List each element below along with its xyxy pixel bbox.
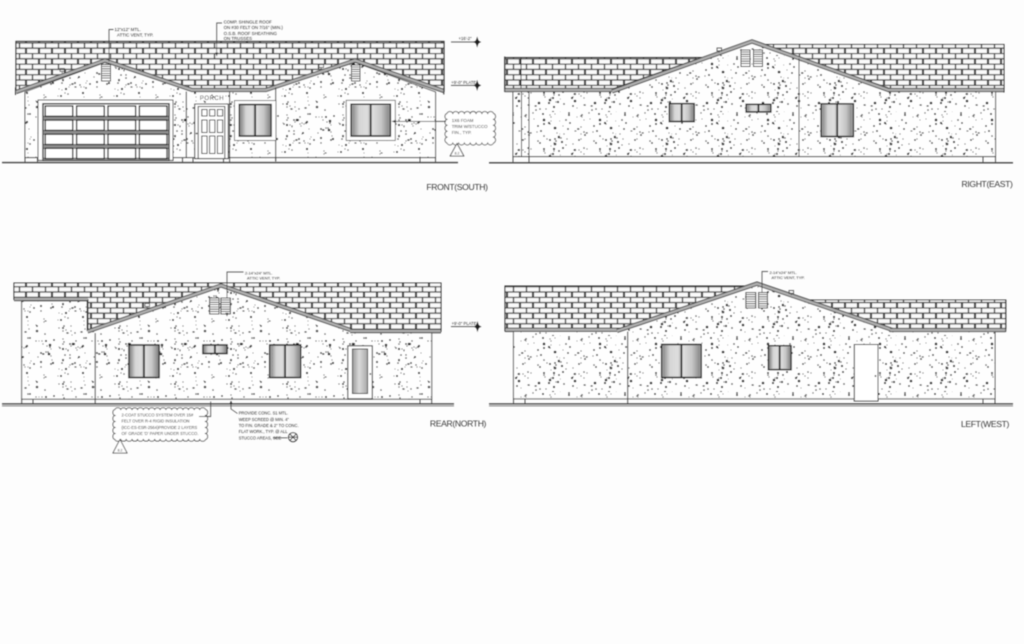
svg-text:FLAT WORK., TYP. @ ALL: FLAT WORK., TYP. @ ALL [239,429,289,434]
svg-text:WEEP SCREED @ MIN. 4": WEEP SCREED @ MIN. 4" [239,417,290,422]
svg-text:ON #30 FELT ON 7/16" (MIN.): ON #30 FELT ON 7/16" (MIN.) [224,25,284,30]
svg-text:1X6 FOAM: 1X6 FOAM [452,118,474,123]
svg-text:O.S.B. ROOF SHEATHING: O.S.B. ROOF SHEATHING [224,31,278,36]
svg-text:8.2: 8.2 [118,449,123,453]
svg-text:ATTIC VENT, TYP.: ATTIC VENT, TYP. [247,276,280,281]
svg-text:+9'-0" PLATE: +9'-0" PLATE [452,321,477,326]
svg-text:REAR(NORTH): REAR(NORTH) [430,419,487,429]
svg-text:8.2: 8.2 [455,152,460,156]
svg-text:2-COAT STUCCO SYSTEM OVER 15#: 2-COAT STUCCO SYSTEM OVER 15# [122,412,194,417]
svg-text:COMP. SHINGLE ROOF: COMP. SHINGLE ROOF [224,20,273,25]
svg-text:+16'-2": +16'-2" [459,36,473,41]
svg-text:PORCH: PORCH [200,96,224,102]
svg-text:LEFT(WEST): LEFT(WEST) [961,419,1010,429]
svg-text:RIGHT(EAST): RIGHT(EAST) [961,179,1013,189]
svg-text:TRIM W/STUCCO: TRIM W/STUCCO [452,124,488,129]
svg-text:ON TRUSSES: ON TRUSSES [224,36,253,41]
svg-text:(ICC-ES-ESR-2564)PROVIDE 2 LAY: (ICC-ES-ESR-2564)PROVIDE 2 LAYERS [122,425,198,430]
svg-text:OF GRADE 'D' PAPER UNDER STUCC: OF GRADE 'D' PAPER UNDER STUCCO. [122,431,199,436]
svg-text:ATTIC VENT, TYP.: ATTIC VENT, TYP. [117,33,153,38]
svg-text:FRONT(SOUTH): FRONT(SOUTH) [426,182,488,192]
svg-text:TO FIN. GRADE & 2" TO CONC.: TO FIN. GRADE & 2" TO CONC. [239,423,299,428]
svg-text:FELT OVER R-4 RIGID INSULATION: FELT OVER R-4 RIGID INSULATION [122,419,190,424]
svg-text:+9'-0" PLATE: +9'-0" PLATE [451,80,476,85]
svg-text:ATTIC VENT, TYP.: ATTIC VENT, TYP. [772,275,805,280]
svg-text:12"x12" MTL.: 12"x12" MTL. [115,27,141,32]
svg-text:PROVIDE CONC. S1 MTL.: PROVIDE CONC. S1 MTL. [239,411,288,416]
svg-text:FIN., TYP.: FIN., TYP. [452,130,472,135]
